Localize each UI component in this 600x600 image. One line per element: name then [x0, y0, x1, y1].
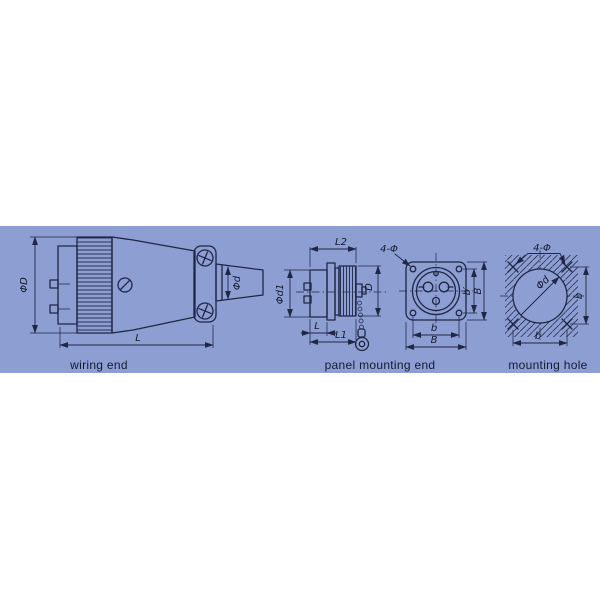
dim-label-b-inner: b′: [462, 286, 473, 295]
screenshot-page: ΦD Φd L wiring end: [0, 0, 600, 600]
dim-label-B-side: B: [473, 287, 484, 294]
dim-label-L: L: [135, 333, 141, 344]
dim-label-b-bottom-hole: b: [535, 331, 541, 342]
connector-technical-drawing: ΦD Φd L wiring end: [0, 0, 600, 600]
knurled-dust-cap: [339, 266, 356, 316]
dim-label-phi-d: Φd: [232, 275, 243, 290]
caption-wiring-end: wiring end: [69, 358, 128, 372]
dim-label-L-small: L: [314, 321, 320, 332]
dim-label-L1: L1: [335, 330, 347, 341]
knurled-coupling-ring: [77, 237, 112, 333]
caption-mounting-hole: mounting hole: [508, 358, 587, 372]
dim-label-L2: L2: [335, 237, 347, 248]
dim-label-phi-D: ΦD: [19, 277, 30, 293]
dim-label-D: D: [364, 283, 375, 291]
dim-label-b-bottom-flange: b: [431, 323, 437, 334]
dim-label-phi-d1: Φd1: [275, 284, 286, 305]
dim-label-b-side-hole: b: [574, 293, 585, 299]
dim-label-B-bottom-flange: B: [431, 335, 438, 346]
dim-label-four-phi-flange: 4-Φ: [380, 244, 398, 255]
dim-label-four-phi-holes: 4-Φ: [533, 243, 551, 254]
caption-panel-mounting-end: panel mounting end: [325, 358, 436, 372]
